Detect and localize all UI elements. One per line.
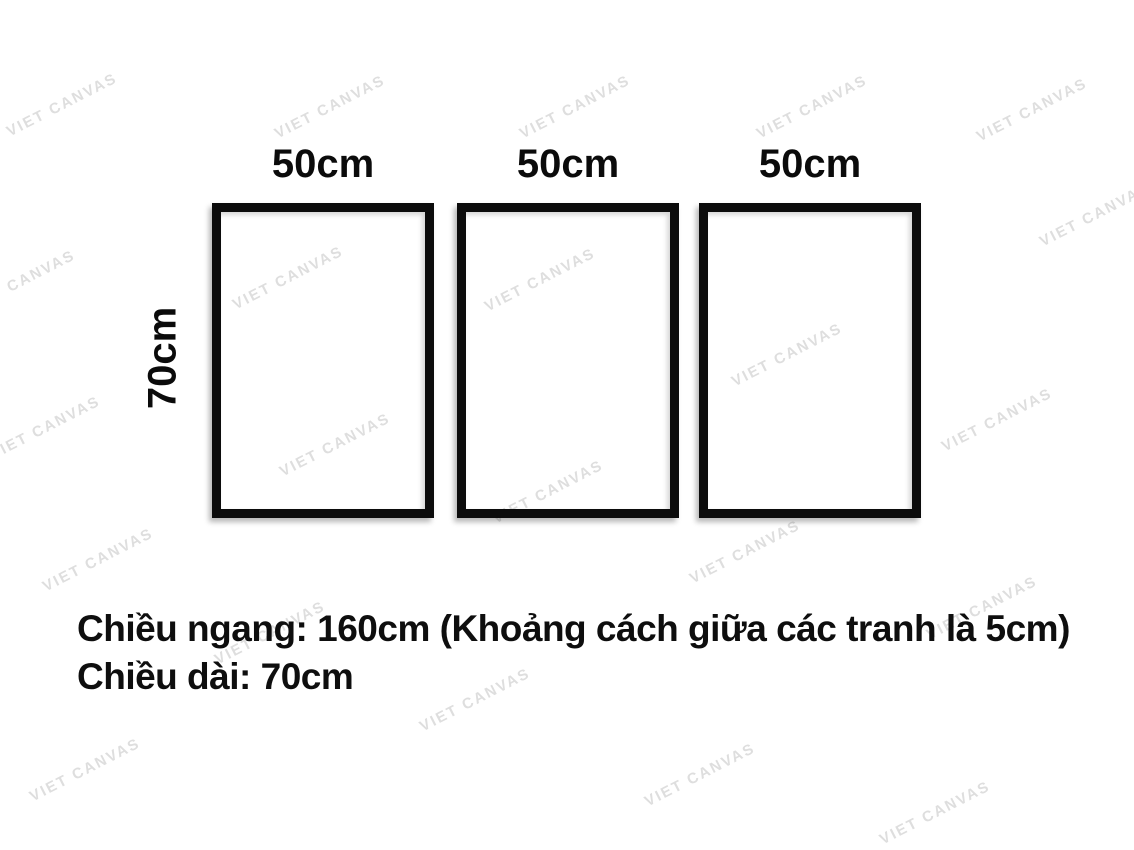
watermark-text: VIET CANVAS: [0, 247, 78, 317]
watermark-text: VIET CANVAS: [0, 393, 103, 463]
watermark-text: VIET CANVAS: [687, 517, 803, 587]
caption-line-horizontal-size: Chiều ngang: 160cm (Khoảng cách giữa các…: [77, 605, 1070, 653]
frame-height-label: 70cm: [141, 307, 186, 409]
caption-line-vertical-size: Chiều dài: 70cm: [77, 653, 1070, 701]
watermark-text: VIET CANVAS: [272, 72, 388, 142]
watermark-text: VIET CANVAS: [27, 735, 143, 805]
watermark-text: VIET CANVAS: [754, 72, 870, 142]
watermark-text: VIET CANVAS: [4, 70, 120, 140]
watermark-text: VIET CANVAS: [939, 385, 1055, 455]
picture-frame-1: [212, 203, 434, 518]
frame-3-width-label: 50cm: [759, 142, 861, 187]
picture-frame-2: [457, 203, 679, 518]
watermark-text: VIET CANVAS: [40, 525, 156, 595]
watermark-text: VIET CANVAS: [974, 75, 1090, 145]
watermark-text: VIET CANVAS: [877, 778, 993, 848]
caption: Chiều ngang: 160cm (Khoảng cách giữa các…: [77, 605, 1070, 701]
watermark-text: VIET CANVAS: [642, 740, 758, 810]
frame-1-width-label: 50cm: [272, 142, 374, 187]
watermark-text: VIET CANVAS: [517, 72, 633, 142]
picture-frame-3: [699, 203, 921, 518]
watermark-text: VIET CANVAS: [1037, 180, 1134, 250]
canvas-size-diagram: VIET CANVASVIET CANVASVIET CANVASVIET CA…: [0, 0, 1134, 850]
frame-2-width-label: 50cm: [517, 142, 619, 187]
